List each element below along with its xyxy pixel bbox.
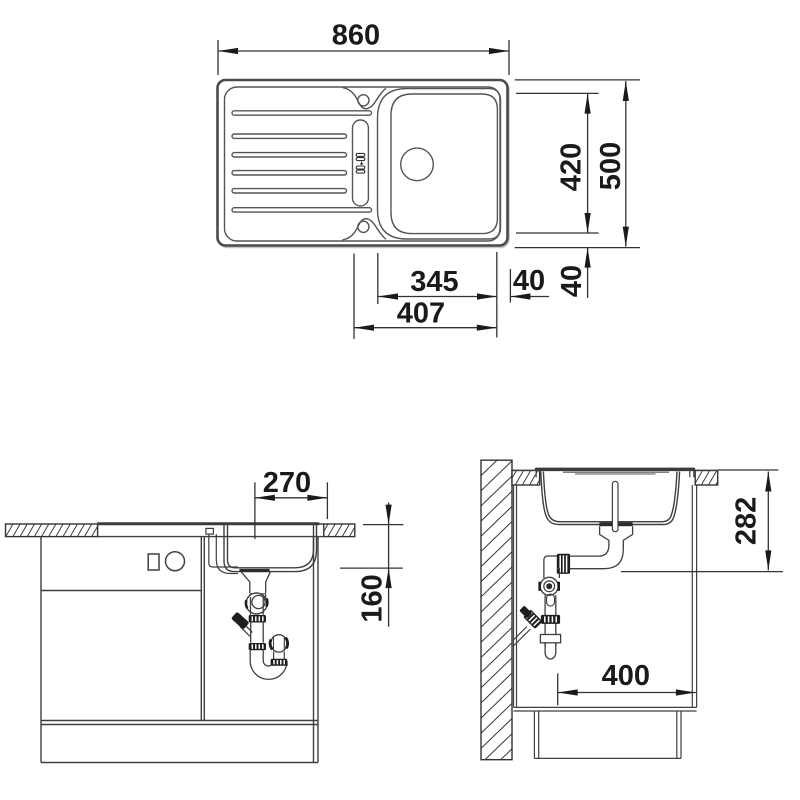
svg-text:160: 160 — [357, 574, 389, 622]
svg-text:282: 282 — [731, 497, 763, 545]
svg-text:40: 40 — [556, 265, 588, 297]
svg-text:500: 500 — [595, 142, 627, 190]
svg-text:270: 270 — [263, 467, 311, 499]
svg-text:860: 860 — [332, 20, 380, 52]
svg-text:420: 420 — [556, 143, 588, 191]
svg-text:407: 407 — [397, 298, 445, 330]
svg-text:40: 40 — [513, 265, 545, 297]
svg-text:400: 400 — [602, 660, 650, 692]
svg-text:345: 345 — [410, 266, 458, 298]
